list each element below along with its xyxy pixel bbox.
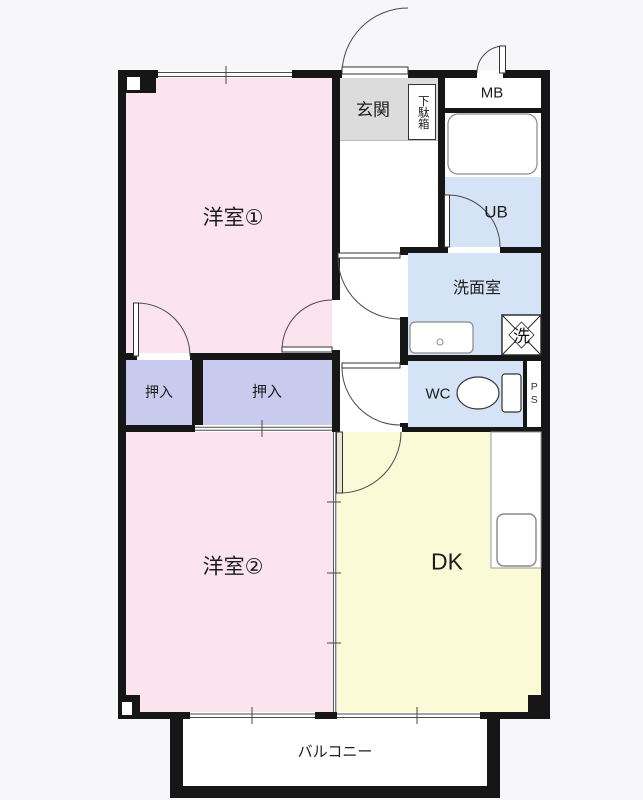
washroom-door-opening: [400, 255, 408, 317]
label-entrance: 玄関: [356, 102, 390, 119]
mb-door-opening: [477, 70, 503, 78]
label-pipe-space: PS: [529, 381, 540, 407]
label-western1: 洋室①: [203, 208, 264, 229]
sliding-partition: [332, 432, 337, 712]
ub-door-opening: [448, 247, 500, 253]
closet-sliding-door: [195, 425, 332, 432]
wall-segment: [292, 70, 342, 78]
window-opening-dk: [337, 712, 480, 719]
window-opening-west1: [158, 70, 292, 78]
label-wc: WC: [426, 387, 451, 402]
pillar-hollow: [122, 702, 132, 715]
wall-right: [541, 70, 550, 719]
wc-door-opening: [400, 365, 408, 423]
label-closet-left: 押入: [145, 385, 173, 399]
label-balcony: バルコニー: [298, 745, 373, 760]
label-meter-box: MB: [481, 86, 504, 101]
wall-segment: [408, 70, 477, 78]
wall-mb-bottom: [445, 108, 541, 113]
dk-door-opening: [340, 427, 402, 432]
room-washroom: [408, 253, 541, 355]
wall-corridor-left: [332, 78, 340, 432]
front-door-arc: [342, 8, 408, 74]
wall-wc-top: [408, 355, 541, 361]
wall-closet-divider: [192, 360, 203, 425]
floor-plan: 洗 洋室① 玄関 下駄箱 MB UB 洗面室 WC PS 押入 押入 洋室② D…: [0, 0, 643, 800]
closet-door-opening: [137, 353, 190, 360]
label-closet-right: 押入: [252, 385, 282, 400]
pillar-bottom-right: [528, 695, 550, 719]
west1-door-opening: [332, 300, 340, 350]
front-door-opening: [342, 70, 408, 78]
mb-door-leaf: [500, 46, 506, 73]
label-unit-bath: UB: [484, 204, 508, 221]
pillar-hollow: [127, 77, 140, 90]
label-shoe-cabinet: 下駄箱: [416, 95, 428, 130]
mb-door-arc: [477, 46, 504, 73]
shoe-cabinet: 下駄箱: [408, 84, 436, 140]
label-western2: 洋室②: [203, 557, 264, 578]
balcony-wall-bottom: [170, 786, 500, 798]
wall-left: [118, 70, 126, 719]
label-washroom: 洗面室: [453, 281, 501, 297]
wall-entrance-right: [438, 78, 445, 253]
label-dining-kitchen: DK: [431, 551, 463, 574]
wall-ps-divider: [523, 361, 527, 427]
window-opening-west2: [190, 712, 315, 719]
wall-segment: [315, 712, 337, 719]
